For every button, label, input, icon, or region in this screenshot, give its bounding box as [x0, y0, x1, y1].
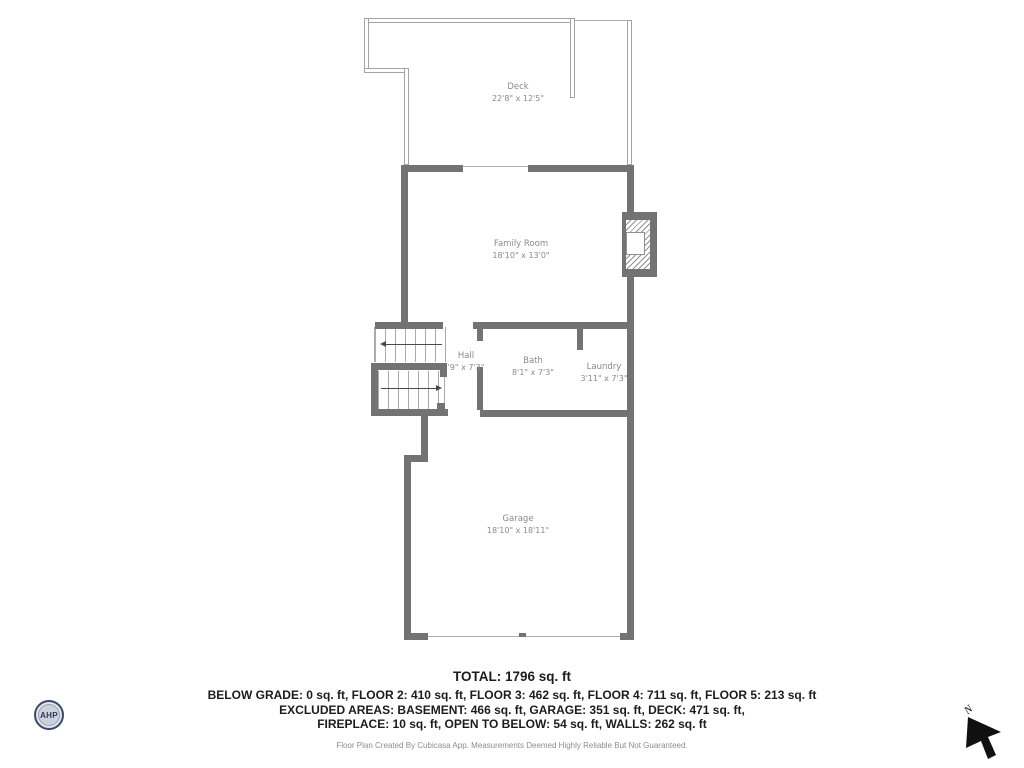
wall-segment — [404, 455, 411, 640]
floor-plan-page: Deck 22'8" x 12'5" Family Room 18'10" x … — [0, 0, 1024, 768]
deck-railing-notch-v — [404, 68, 409, 165]
wall-segment — [440, 370, 447, 377]
room-name: Family Room — [492, 239, 549, 250]
stair-arrow-up-line — [385, 344, 442, 345]
excluded-areas-text: EXCLUDED AREAS: BASEMENT: 466 sq. ft, GA… — [0, 703, 1024, 717]
room-dimensions: 22'8" x 12'5" — [492, 93, 544, 104]
room-dimensions: 18'10" x 18'11" — [487, 525, 549, 536]
fireplace-firebox — [626, 232, 645, 255]
wall-segment — [473, 322, 627, 329]
room-name: Deck — [492, 82, 544, 93]
room-name: Garage — [487, 514, 549, 525]
room-dimensions: 8'1" x 7'3" — [512, 367, 554, 378]
wall-segment — [480, 410, 627, 417]
stair-arrow-down-line — [381, 388, 436, 389]
wall-segment — [375, 322, 443, 329]
room-label-laundry: Laundry 3'11" x 7'3" — [580, 362, 627, 384]
room-label-hall: Hall '9" x 7'3" — [448, 351, 485, 373]
wall-segment — [577, 329, 583, 350]
stairs-lower-flight — [378, 371, 445, 409]
wall-segment — [528, 165, 634, 172]
room-name: Laundry — [580, 362, 627, 373]
room-dimensions: 3'11" x 7'3" — [580, 373, 627, 384]
ahp-logo-text: AHP — [40, 711, 58, 720]
wall-segment — [404, 633, 428, 640]
garage-door-stub — [519, 633, 526, 637]
fireplace — [622, 212, 657, 277]
wall-segment — [620, 633, 634, 640]
wall-segment — [477, 367, 483, 410]
stair-arrow-up-head — [380, 341, 386, 347]
room-label-garage: Garage 18'10" x 18'11" — [487, 514, 549, 536]
deck-railing-notch-h — [364, 68, 409, 73]
room-name: Bath — [512, 356, 554, 367]
wall-segment — [437, 403, 445, 409]
window-line — [463, 166, 528, 167]
wall-segment — [401, 165, 408, 329]
wall-segment — [421, 416, 428, 457]
north-arrow-icon — [963, 714, 1007, 762]
deck-railing-right — [627, 20, 632, 165]
room-label-bath: Bath 8'1" x 7'3" — [512, 356, 554, 378]
wall-segment — [477, 329, 483, 341]
deck-railing-top — [364, 18, 575, 23]
north-compass: N — [955, 700, 1015, 765]
excluded-areas-text-2: FIREPLACE: 10 sq. ft, OPEN TO BELOW: 54 … — [0, 717, 1024, 731]
deck-railing-divider — [570, 18, 575, 98]
wall-segment — [403, 165, 463, 172]
room-label-deck: Deck 22'8" x 12'5" — [492, 82, 544, 104]
ahp-logo: AHP — [34, 700, 64, 730]
wall-segment — [371, 363, 447, 370]
disclaimer-text: Floor Plan Created By Cubicasa App. Meas… — [0, 741, 1024, 750]
room-label-family-room: Family Room 18'10" x 13'0" — [492, 239, 549, 261]
room-name: Hall — [448, 351, 485, 362]
stair-arrow-down-head — [436, 385, 442, 391]
room-dimensions: 18'10" x 13'0" — [492, 250, 549, 261]
room-dimensions: '9" x 7'3" — [448, 362, 485, 373]
wall-segment — [371, 409, 448, 416]
total-area-text: TOTAL: 1796 sq. ft — [0, 669, 1024, 684]
floor-areas-text: BELOW GRADE: 0 sq. ft, FLOOR 2: 410 sq. … — [0, 688, 1024, 702]
deck-railing-left — [364, 18, 369, 73]
deck-edge-line — [575, 20, 627, 21]
